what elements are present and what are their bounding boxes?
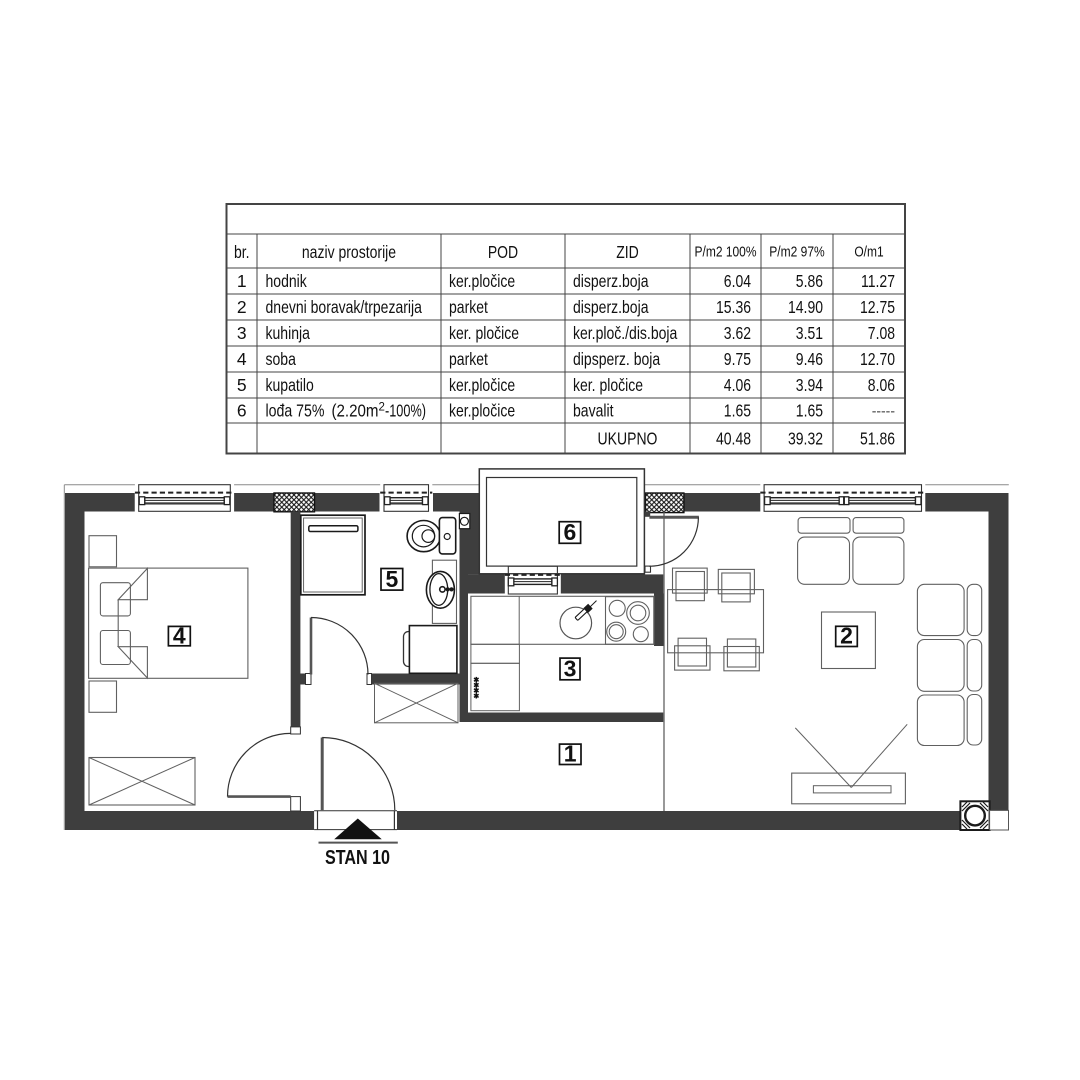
svg-text:disperz.boja: disperz.boja [573, 271, 649, 291]
svg-text:parket: parket [449, 349, 488, 369]
svg-text:5.86: 5.86 [796, 271, 823, 291]
svg-text:2: 2 [840, 622, 853, 648]
svg-text:40.48: 40.48 [716, 428, 751, 448]
svg-text:kuhinja: kuhinja [266, 323, 311, 343]
svg-text:9.46: 9.46 [796, 349, 823, 369]
svg-text:1.65: 1.65 [724, 401, 751, 421]
svg-text:1: 1 [564, 740, 577, 766]
svg-text:ZID: ZID [616, 242, 639, 262]
svg-text:6.04: 6.04 [724, 271, 751, 291]
svg-text:12.75: 12.75 [860, 297, 895, 317]
svg-text:-100%): -100%) [385, 401, 426, 421]
svg-text:7.08: 7.08 [868, 323, 895, 343]
svg-text:ker.pločice: ker.pločice [449, 271, 515, 291]
svg-text:br.: br. [234, 242, 250, 262]
svg-text:dipsperz. boja: dipsperz. boja [573, 349, 660, 369]
svg-text:ker.pločice: ker.pločice [449, 401, 515, 421]
svg-text:UKUPNO: UKUPNO [598, 428, 658, 448]
svg-text:5: 5 [386, 566, 399, 592]
svg-text:ker.ploč./dis.boja: ker.ploč./dis.boja [573, 323, 678, 343]
svg-text:kupatilo: kupatilo [266, 375, 314, 395]
svg-text:P/m2 97%: P/m2 97% [769, 243, 824, 260]
svg-text:3.51: 3.51 [796, 323, 823, 343]
svg-text:hodnik: hodnik [266, 271, 307, 291]
svg-text:-----: ----- [872, 401, 895, 421]
svg-text:POD: POD [488, 242, 518, 262]
svg-text:39.32: 39.32 [788, 428, 823, 448]
svg-text:3.94: 3.94 [796, 375, 823, 395]
svg-text:1: 1 [237, 271, 247, 291]
svg-text:14.90: 14.90 [788, 297, 823, 317]
svg-text:5: 5 [237, 375, 247, 395]
svg-text:9.75: 9.75 [724, 349, 751, 369]
svg-text:lođa 75%: lođa 75% [266, 401, 325, 421]
svg-text:6: 6 [237, 401, 247, 421]
svg-text:3: 3 [564, 656, 577, 682]
svg-text:bavalit: bavalit [573, 401, 614, 421]
svg-text:3.62: 3.62 [724, 323, 751, 343]
svg-text:4: 4 [237, 349, 247, 369]
svg-text:1.65: 1.65 [796, 401, 823, 421]
svg-text:disperz.boja: disperz.boja [573, 297, 649, 317]
svg-text:(2.20m: (2.20m [332, 401, 379, 421]
svg-text:11.27: 11.27 [861, 271, 895, 291]
svg-text:ker. pločice: ker. pločice [449, 323, 519, 343]
svg-text:2: 2 [379, 402, 385, 414]
svg-text:2: 2 [237, 297, 247, 317]
svg-text:ker.pločice: ker.pločice [449, 375, 515, 395]
svg-text:8.06: 8.06 [868, 375, 895, 395]
svg-text:naziv prostorije: naziv prostorije [302, 242, 396, 262]
svg-text:dnevni boravak/trpezarija: dnevni boravak/trpezarija [266, 297, 423, 317]
svg-text:3: 3 [237, 323, 247, 343]
svg-text:P/m2 100%: P/m2 100% [695, 243, 757, 260]
svg-text:ker. pločice: ker. pločice [573, 375, 643, 395]
svg-text:parket: parket [449, 297, 488, 317]
svg-text:O/m1: O/m1 [854, 243, 883, 260]
svg-text:12.70: 12.70 [860, 349, 895, 369]
svg-text:51.86: 51.86 [860, 428, 895, 448]
svg-text:soba: soba [266, 349, 297, 369]
svg-text:15.36: 15.36 [716, 297, 751, 317]
svg-text:6: 6 [564, 519, 577, 545]
svg-text:4.06: 4.06 [724, 375, 751, 395]
svg-text:4: 4 [173, 623, 186, 649]
svg-text:STAN 10: STAN 10 [325, 846, 390, 869]
